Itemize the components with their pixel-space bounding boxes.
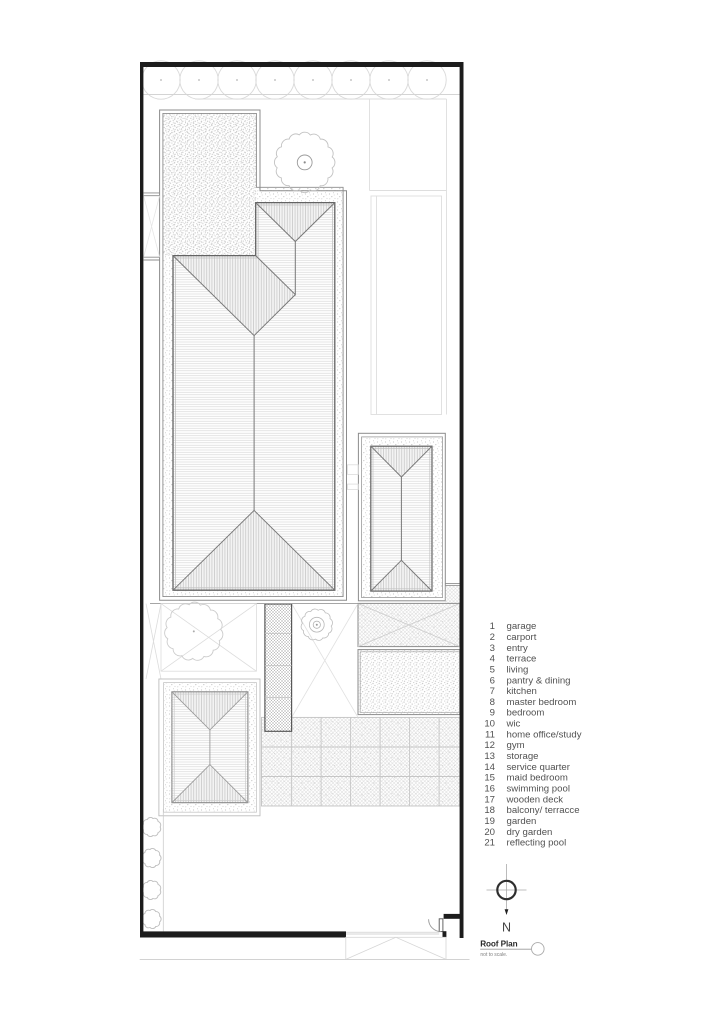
svg-text:maid bedroom: maid bedroom bbox=[507, 773, 568, 784]
svg-text:wic: wic bbox=[506, 719, 521, 730]
svg-text:N: N bbox=[502, 921, 511, 935]
svg-text:9: 9 bbox=[490, 708, 495, 719]
svg-text:living: living bbox=[507, 665, 529, 676]
svg-text:entry: entry bbox=[507, 643, 529, 654]
svg-text:4: 4 bbox=[490, 654, 496, 665]
svg-text:balcony/ terracce: balcony/ terracce bbox=[507, 805, 580, 816]
svg-text:17: 17 bbox=[484, 794, 495, 805]
svg-text:garden: garden bbox=[507, 816, 537, 827]
svg-text:10: 10 bbox=[484, 719, 495, 730]
svg-text:pantry & dining: pantry & dining bbox=[507, 675, 571, 686]
svg-text:16: 16 bbox=[484, 784, 495, 795]
svg-text:14: 14 bbox=[484, 762, 495, 773]
svg-text:home office/study: home office/study bbox=[507, 729, 582, 740]
svg-text:12: 12 bbox=[484, 740, 495, 751]
svg-text:dry garden: dry garden bbox=[507, 827, 553, 838]
svg-text:bedroom: bedroom bbox=[507, 708, 545, 719]
svg-text:carport: carport bbox=[507, 632, 537, 643]
svg-text:13: 13 bbox=[484, 751, 495, 762]
svg-text:20: 20 bbox=[484, 827, 495, 838]
svg-text:6: 6 bbox=[490, 675, 495, 686]
svg-text:1: 1 bbox=[490, 621, 495, 632]
svg-text:5: 5 bbox=[490, 665, 495, 676]
svg-text:2: 2 bbox=[490, 632, 495, 643]
svg-text:garage: garage bbox=[507, 621, 537, 632]
svg-text:7: 7 bbox=[490, 686, 495, 697]
svg-text:Roof Plan: Roof Plan bbox=[480, 940, 517, 949]
svg-text:master bedroom: master bedroom bbox=[507, 697, 577, 708]
svg-text:service quarter: service quarter bbox=[507, 762, 571, 773]
svg-text:kitchen: kitchen bbox=[507, 686, 537, 697]
svg-text:reflecting pool: reflecting pool bbox=[507, 838, 567, 849]
svg-text:19: 19 bbox=[484, 816, 495, 827]
svg-text:18: 18 bbox=[484, 805, 495, 816]
svg-text:swimming pool: swimming pool bbox=[507, 784, 570, 795]
svg-text:21: 21 bbox=[484, 838, 495, 849]
svg-text:3: 3 bbox=[490, 643, 495, 654]
svg-text:not to scale.: not to scale. bbox=[480, 952, 507, 958]
svg-text:11: 11 bbox=[485, 729, 495, 740]
svg-text:15: 15 bbox=[484, 773, 495, 784]
svg-text:8: 8 bbox=[490, 697, 495, 708]
svg-text:gym: gym bbox=[507, 740, 525, 751]
svg-text:storage: storage bbox=[507, 751, 539, 762]
svg-text:terrace: terrace bbox=[507, 654, 537, 665]
svg-text:wooden deck: wooden deck bbox=[506, 794, 564, 805]
